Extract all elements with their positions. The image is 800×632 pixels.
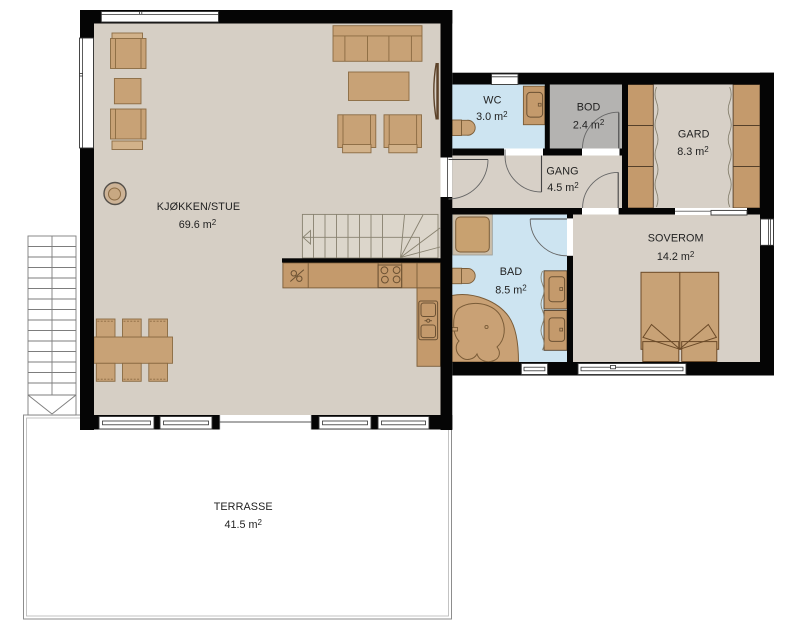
svg-text:69.6 m2: 69.6 m2 bbox=[179, 218, 217, 231]
svg-text:14.2 m2: 14.2 m2 bbox=[657, 250, 695, 263]
svg-text:BAD: BAD bbox=[500, 266, 523, 278]
svg-text:GARD: GARD bbox=[678, 129, 710, 141]
svg-text:WC: WC bbox=[483, 95, 501, 107]
svg-text:KJØKKEN/STUE: KJØKKEN/STUE bbox=[157, 201, 240, 213]
svg-text:41.5 m2: 41.5 m2 bbox=[224, 518, 262, 531]
svg-text:SOVEROM: SOVEROM bbox=[648, 233, 704, 245]
svg-text:GANG: GANG bbox=[546, 166, 578, 178]
svg-text:TERRASSE: TERRASSE bbox=[214, 501, 273, 513]
svg-text:BOD: BOD bbox=[577, 102, 601, 114]
